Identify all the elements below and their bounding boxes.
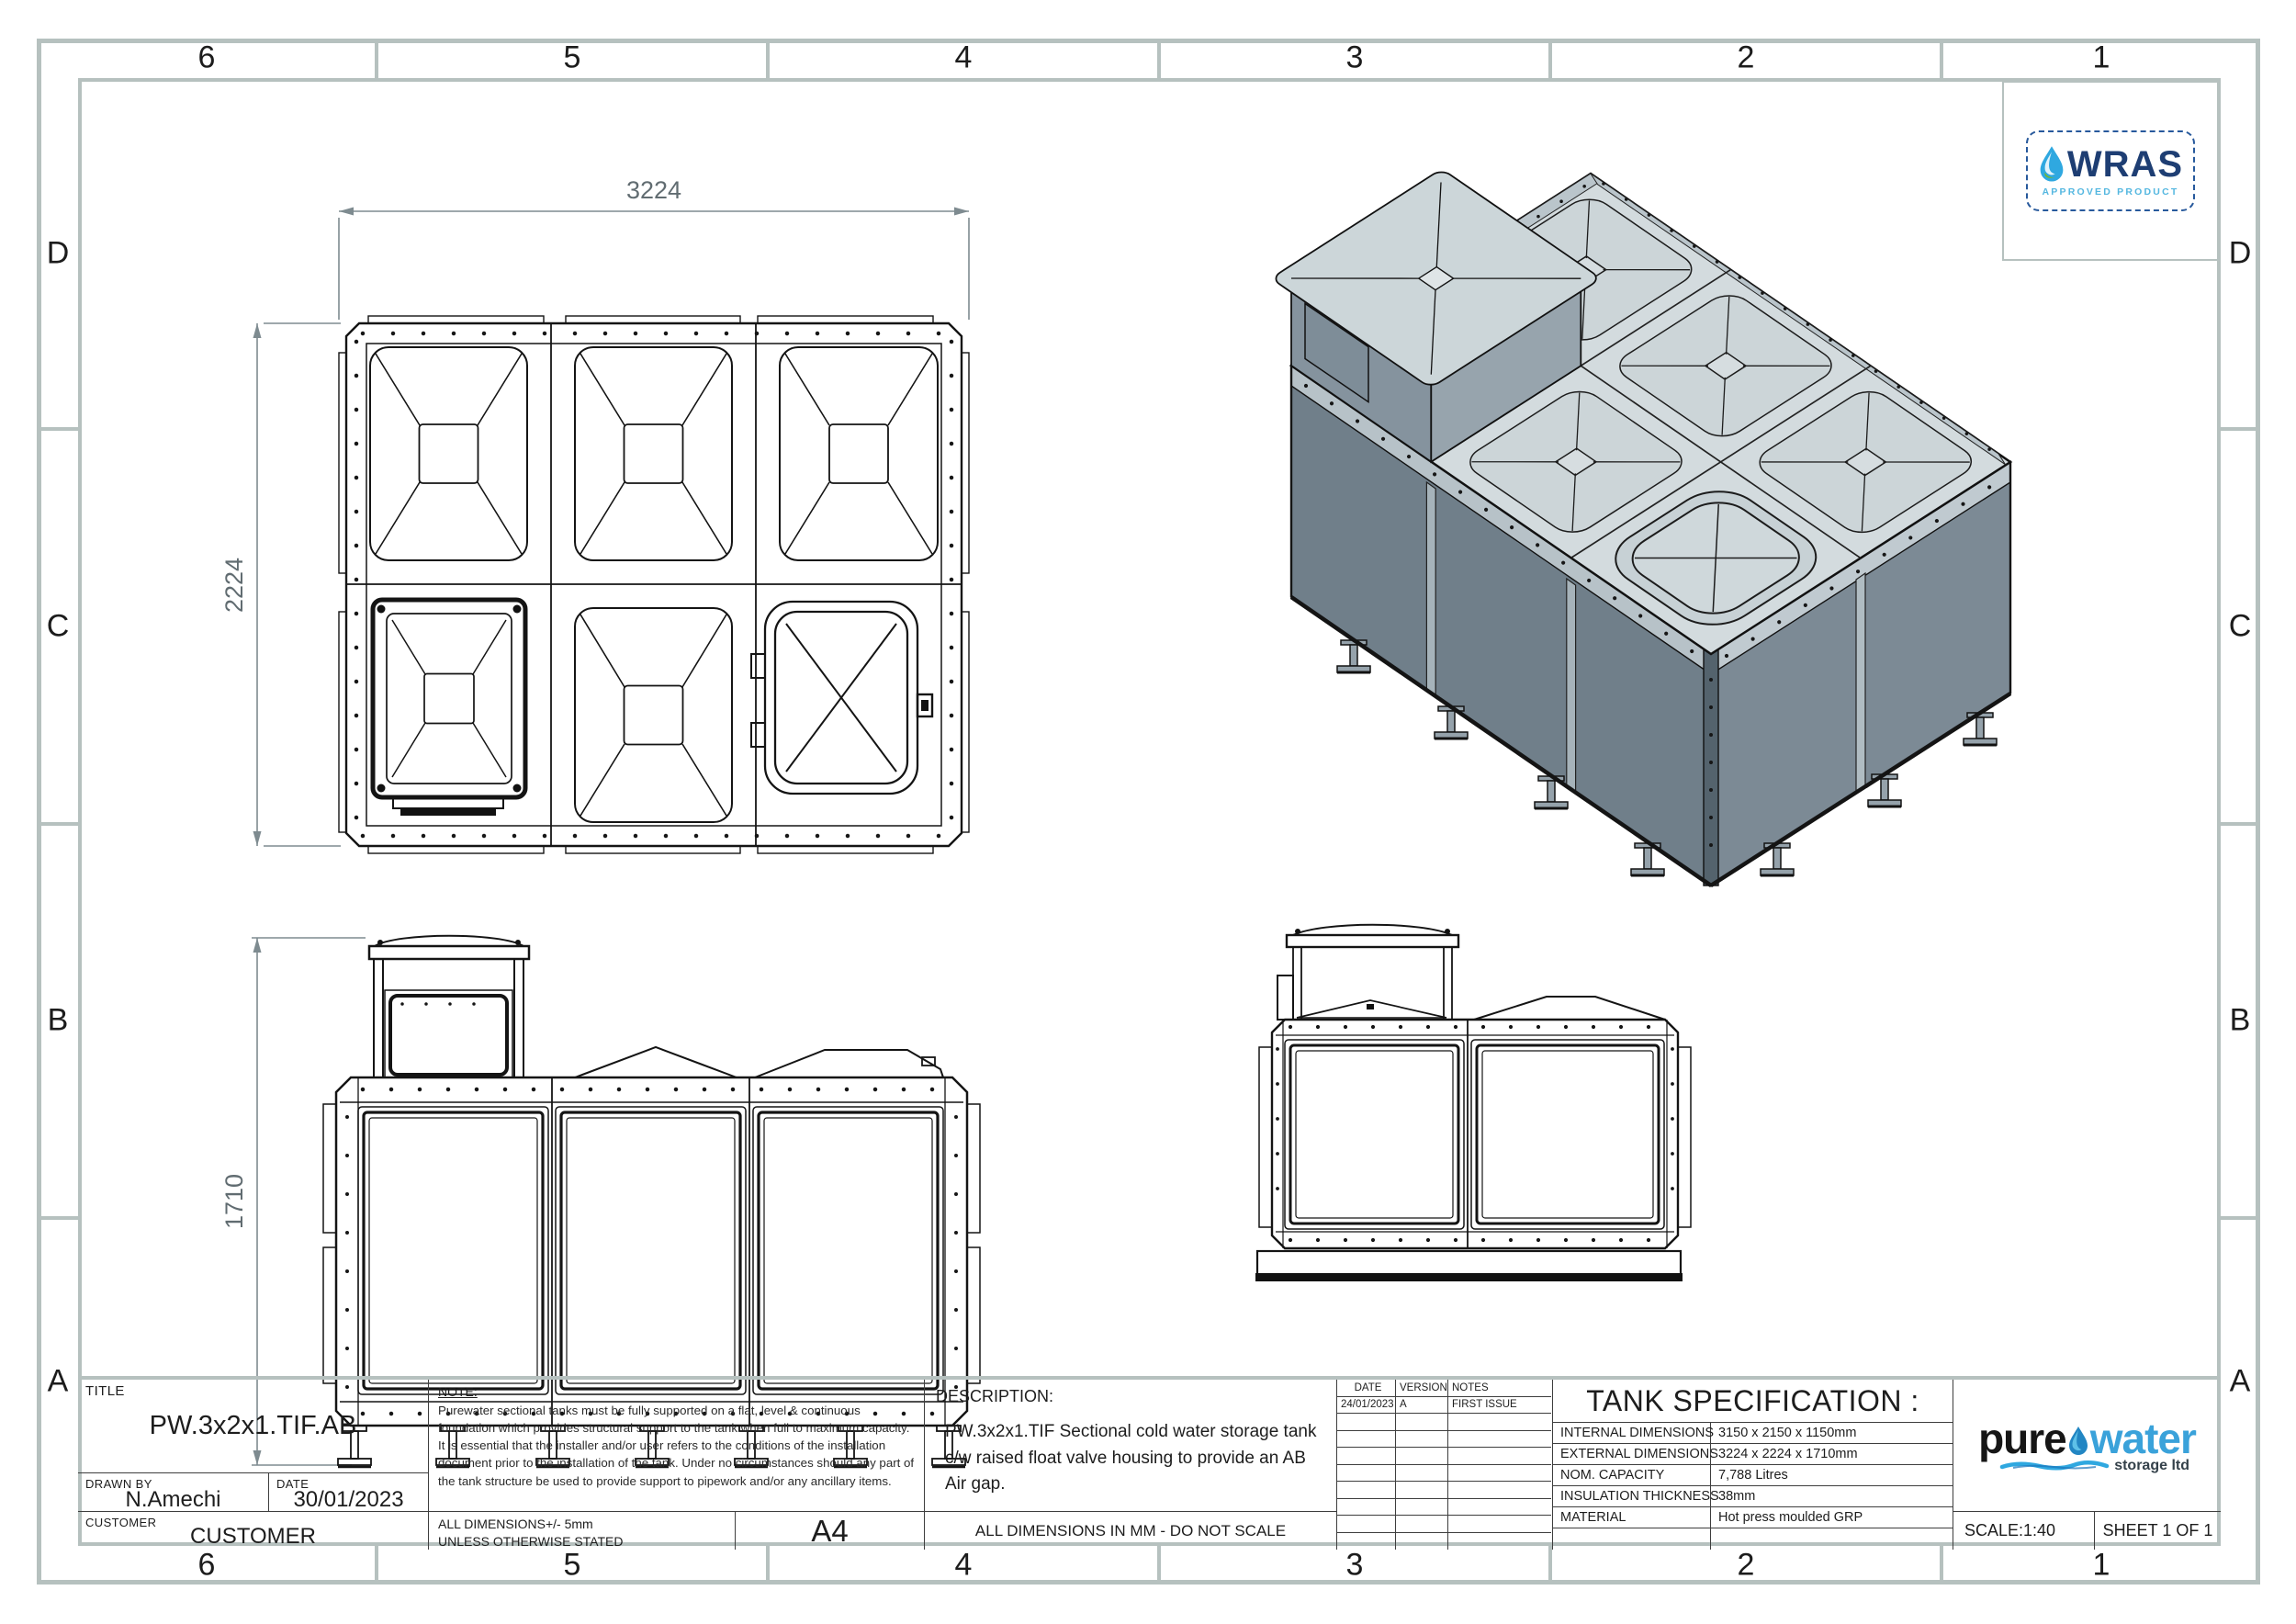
purewater-logo: pure water storage ltd	[1953, 1380, 2221, 1511]
access-hatch-plan	[751, 602, 932, 794]
sheet-number: SHEET 1 OF 1	[2095, 1512, 2221, 1550]
drawing-sheet: 6 5 4 3 2 1 6 5 4 3 2 1 D C B A D C B A …	[0, 0, 2296, 1624]
zone-tick	[766, 39, 770, 78]
wras-name: WRAS	[2067, 146, 2183, 183]
wras-logo-box: WRAS APPROVED PRODUCT	[2002, 81, 2219, 261]
paper-size-cell: A4	[736, 1512, 925, 1550]
svg-text:3224: 3224	[626, 176, 681, 204]
front-panel	[556, 1107, 746, 1394]
zone-tick	[375, 39, 378, 78]
wras-mark: WRAS APPROVED PRODUCT	[2026, 130, 2195, 211]
revision-row-empty	[1337, 1516, 1552, 1533]
brand-word-pure: pure	[1978, 1417, 2066, 1460]
paper-size: A4	[736, 1512, 924, 1550]
isometric-view	[1277, 138, 2030, 928]
zone-tick	[2221, 822, 2260, 826]
wave-underline	[2000, 1460, 2109, 1472]
float-valve-housing-plan	[373, 600, 525, 816]
plan-view: 3224 2224	[211, 129, 1019, 863]
front-panel	[753, 1107, 943, 1394]
scale-value: SCALE:1:40	[1953, 1512, 2094, 1550]
zone-tick	[766, 1546, 770, 1585]
spec-row: NOM. CAPACITY7,788 Litres	[1553, 1465, 1953, 1486]
brand-logo-cell: pure water storage ltd	[1953, 1380, 2221, 1512]
spec-row: INSULATION THICKNESS38mm	[1553, 1486, 1953, 1507]
tolerance-line2: UNLESS OTHERWISE STATED	[438, 1533, 735, 1551]
zone-tick	[37, 822, 78, 826]
zone-tick	[1157, 39, 1161, 78]
zone-row-label: B	[48, 1003, 69, 1039]
zone-col-label: 1	[2093, 1548, 2110, 1584]
zone-tick	[37, 427, 78, 431]
description-label: DESCRIPTION:	[936, 1387, 1325, 1406]
plan-roof-panel	[370, 347, 527, 560]
brand-word-water: water	[2090, 1417, 2196, 1460]
specification-table: TANK SPECIFICATION : INTERNAL DIMENSIONS…	[1553, 1380, 1953, 1550]
iso-tank	[1271, 169, 2010, 885]
water-drop-icon	[2067, 1425, 2089, 1458]
zone-col-label: 1	[2093, 40, 2110, 76]
customer-cell: CUSTOMER CUSTOMER	[78, 1512, 429, 1550]
drawn-by-label: DRAWN BY	[85, 1477, 152, 1491]
dimension-plan-height: 2224	[220, 323, 341, 846]
zone-tick	[2221, 1216, 2260, 1220]
revision-row-empty	[1337, 1448, 1552, 1465]
plan-roof-panel	[780, 347, 938, 560]
spec-row: MATERIALHot press moulded GRP	[1553, 1507, 1953, 1528]
zone-row-label: A	[2230, 1364, 2251, 1400]
note-text: Purewater sectional tanks must be fully …	[438, 1402, 915, 1490]
side-roof-profile	[1474, 997, 1665, 1020]
svg-text:1710: 1710	[220, 1174, 248, 1229]
zone-row-label: C	[47, 609, 70, 645]
revision-header-row: DATE VERSION NOTES	[1337, 1380, 1552, 1397]
front-float-valve-housing	[369, 936, 529, 1077]
revision-row: 24/01/2023 A FIRST ISSUE	[1337, 1397, 1552, 1415]
scale-cell: SCALE:1:40	[1953, 1512, 2095, 1550]
revision-row-empty	[1337, 1431, 1552, 1449]
note-label: NOTE:	[438, 1384, 915, 1399]
side-tank-body	[1259, 1020, 1691, 1248]
title-block: TITLE PW.3x2x1.TIF.AB DRAWN BY N.Amechi …	[78, 1376, 2221, 1546]
zone-col-label: 5	[564, 1548, 581, 1584]
side-float-valve-housing	[1277, 925, 1458, 1020]
date-cell: DATE 30/01/2023	[269, 1473, 429, 1512]
zone-tick	[1157, 1546, 1161, 1585]
customer-label: CUSTOMER	[85, 1516, 156, 1529]
plan-roof-panel	[575, 347, 732, 560]
zone-col-label: 5	[564, 40, 581, 76]
specification-title: TANK SPECIFICATION :	[1553, 1380, 1953, 1423]
zone-row-label: D	[2229, 236, 2252, 272]
brand-tagline: storage ltd	[2114, 1458, 2189, 1474]
sheet-number-cell: SHEET 1 OF 1	[2095, 1512, 2221, 1550]
revision-row-empty	[1337, 1465, 1552, 1483]
water-drop-icon	[2038, 145, 2065, 184]
zone-tick	[37, 1216, 78, 1220]
front-tank-body	[323, 1077, 980, 1426]
revision-row-empty	[1337, 1533, 1552, 1550]
side-panel	[1471, 1040, 1664, 1229]
zone-tick	[1548, 39, 1552, 78]
tolerance-line1: ALL DIMENSIONS+/- 5mm	[438, 1516, 735, 1533]
side-elevation-view	[1231, 900, 1727, 1295]
zone-col-label: 3	[1346, 40, 1364, 76]
zone-row-label: D	[47, 236, 70, 272]
revision-table: DATE VERSION NOTES 24/01/2023 A FIRST IS…	[1337, 1380, 1553, 1550]
date-label: DATE	[276, 1477, 309, 1491]
zone-col-label: 3	[1346, 1548, 1364, 1584]
title-cell: TITLE PW.3x2x1.TIF.AB	[78, 1380, 429, 1473]
spec-row-empty	[1553, 1528, 1953, 1550]
zone-row-label: A	[48, 1364, 69, 1400]
title-label: TITLE	[85, 1383, 125, 1399]
spec-row: INTERNAL DIMENSIONS3150 x 2150 x 1150mm	[1553, 1423, 1953, 1444]
plan-roof-panel	[575, 608, 732, 822]
zone-col-label: 2	[1738, 1548, 1755, 1584]
zone-tick	[1940, 1546, 1943, 1585]
svg-text:2224: 2224	[220, 558, 248, 613]
front-panel	[358, 1107, 548, 1394]
description-text: PW.3x2x1.TIF Sectional cold water storag…	[936, 1419, 1325, 1498]
zone-row-label: B	[2230, 1003, 2251, 1039]
plan-tank-outline	[339, 316, 969, 853]
zone-col-label: 6	[198, 40, 216, 76]
side-panel	[1285, 1040, 1464, 1229]
drawn-by-cell: DRAWN BY N.Amechi	[78, 1473, 269, 1512]
zone-col-label: 4	[955, 40, 973, 76]
zone-col-label: 4	[955, 1548, 973, 1584]
drawing-title: PW.3x2x1.TIF.AB	[78, 1380, 428, 1472]
zone-tick	[1940, 39, 1943, 78]
note-cell: NOTE: Purewater sectional tanks must be …	[429, 1380, 925, 1512]
revision-row-empty	[1337, 1482, 1552, 1499]
dimension-plan-width: 3224	[339, 176, 969, 320]
side-base-plinth	[1255, 1251, 1683, 1281]
front-roof-profile	[575, 1047, 943, 1077]
zone-row-label: C	[2229, 609, 2252, 645]
wras-subtitle: APPROVED PRODUCT	[2043, 186, 2179, 197]
zone-tick	[1548, 1546, 1552, 1585]
dims-note-cell: ALL DIMENSIONS IN MM - DO NOT SCALE	[925, 1512, 1337, 1550]
description-cell: DESCRIPTION: PW.3x2x1.TIF Sectional cold…	[925, 1380, 1337, 1512]
revision-row-empty	[1337, 1414, 1552, 1431]
spec-row: EXTERNAL DIMENSIONS3224 x 2224 x 1710mm	[1553, 1444, 1953, 1465]
revision-row-empty	[1337, 1499, 1552, 1517]
zone-col-label: 2	[1738, 40, 1755, 76]
zone-tick	[2221, 427, 2260, 431]
tolerance-cell: ALL DIMENSIONS+/- 5mm UNLESS OTHERWISE S…	[429, 1512, 736, 1550]
dims-note: ALL DIMENSIONS IN MM - DO NOT SCALE	[925, 1512, 1336, 1550]
